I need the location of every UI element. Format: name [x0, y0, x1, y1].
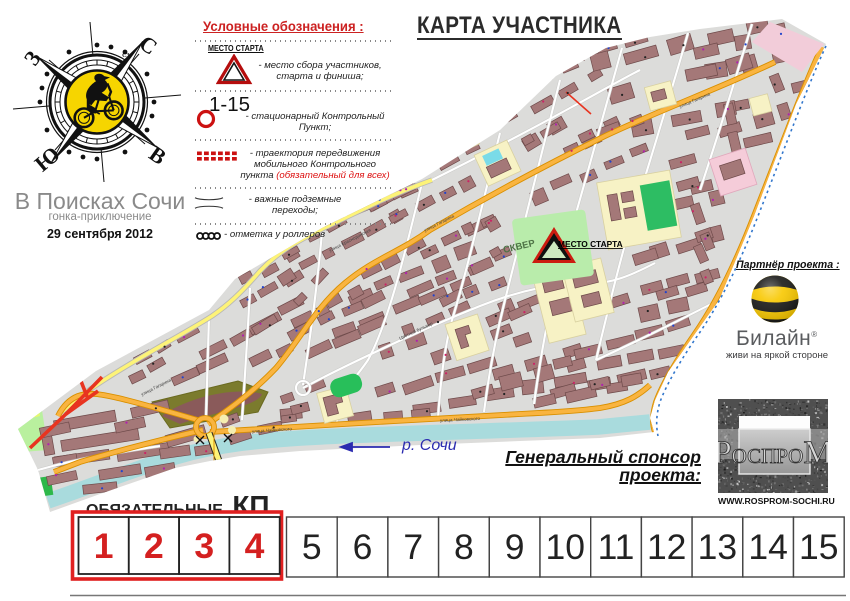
svg-text:10: 10: [546, 527, 586, 567]
svg-text:11: 11: [598, 527, 635, 567]
svg-text:12: 12: [647, 527, 687, 567]
svg-text:8: 8: [454, 527, 474, 567]
svg-text:В: В: [145, 141, 172, 170]
svg-text:С: С: [135, 30, 162, 60]
svg-text:р. Сочи: р. Сочи: [401, 437, 457, 454]
svg-text:9: 9: [505, 527, 525, 567]
svg-text:2: 2: [144, 526, 164, 566]
svg-text:3: 3: [194, 526, 214, 566]
svg-text:7: 7: [403, 527, 423, 567]
svg-text:13: 13: [698, 527, 738, 567]
svg-text:1: 1: [94, 526, 114, 566]
svg-text:14: 14: [748, 527, 788, 567]
svg-text:МЕСТО СТАРТА: МЕСТО СТАРТА: [558, 239, 623, 249]
svg-text:5: 5: [302, 527, 322, 567]
svg-text:15: 15: [799, 527, 839, 567]
svg-text:6: 6: [353, 527, 373, 567]
svg-text:З: З: [19, 46, 46, 70]
svg-text:4: 4: [245, 526, 265, 566]
svg-text:СЗ: СЗ: [122, 53, 129, 59]
